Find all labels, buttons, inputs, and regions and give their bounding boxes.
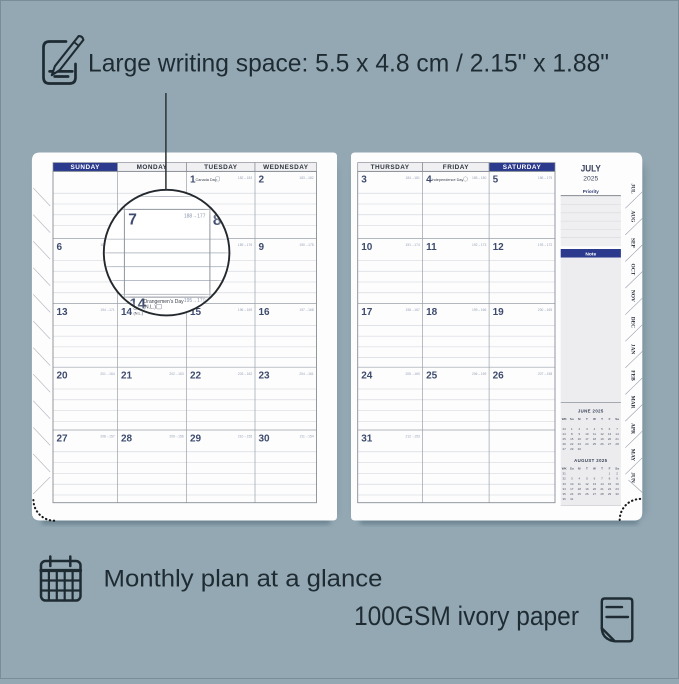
svg-text:Su: Su xyxy=(570,466,574,470)
svg-text:206→159: 206→159 xyxy=(472,372,486,376)
svg-text:9: 9 xyxy=(259,242,265,253)
svg-text:5: 5 xyxy=(493,175,499,186)
svg-text:W: W xyxy=(593,417,596,421)
svg-text:T: T xyxy=(601,417,603,421)
svg-text:11: 11 xyxy=(426,242,437,253)
svg-text:13: 13 xyxy=(608,432,612,436)
svg-text:212→153: 212→153 xyxy=(405,435,419,439)
svg-text:23: 23 xyxy=(578,442,582,446)
svg-text:21: 21 xyxy=(121,371,133,382)
svg-text:27: 27 xyxy=(563,447,567,451)
svg-text:DEC: DEC xyxy=(630,317,636,328)
svg-text:JUN: JUN xyxy=(630,472,636,483)
svg-text:Sa: Sa xyxy=(615,466,619,470)
svg-text:28: 28 xyxy=(600,492,604,496)
svg-text:29: 29 xyxy=(608,492,612,496)
svg-text:MONDAY: MONDAY xyxy=(137,164,168,171)
svg-text:JULY: JULY xyxy=(581,163,601,174)
svg-text:24: 24 xyxy=(361,371,373,382)
svg-text:25: 25 xyxy=(578,492,582,496)
svg-text:23: 23 xyxy=(563,427,567,431)
svg-text:10: 10 xyxy=(361,242,373,253)
svg-text:14: 14 xyxy=(600,482,604,486)
svg-text:13: 13 xyxy=(593,482,597,486)
svg-text:W: W xyxy=(593,466,596,470)
svg-text:APR: APR xyxy=(630,423,636,434)
svg-text:20: 20 xyxy=(57,371,69,382)
svg-text:FEB: FEB xyxy=(630,370,636,381)
svg-text:25: 25 xyxy=(593,442,597,446)
svg-text:20: 20 xyxy=(608,437,612,441)
svg-text:WK: WK xyxy=(562,466,568,470)
svg-text:2025: 2025 xyxy=(583,175,598,182)
svg-text:WEDNESDAY: WEDNESDAY xyxy=(263,164,309,171)
svg-text:19: 19 xyxy=(585,487,589,491)
svg-text:29: 29 xyxy=(570,447,574,451)
svg-text:25: 25 xyxy=(426,371,438,382)
svg-text:31: 31 xyxy=(563,472,567,476)
svg-text:189→176: 189→176 xyxy=(238,243,252,247)
svg-text:12: 12 xyxy=(585,482,589,486)
svg-text:209→156: 209→156 xyxy=(169,435,183,439)
svg-text:35: 35 xyxy=(563,492,567,496)
svg-text:11: 11 xyxy=(593,432,596,436)
svg-text:22: 22 xyxy=(608,487,612,491)
svg-text:12: 12 xyxy=(600,432,604,436)
svg-text:20: 20 xyxy=(593,487,597,491)
svg-text:34: 34 xyxy=(563,487,567,491)
svg-text:SATURDAY: SATURDAY xyxy=(503,164,542,171)
svg-text:26: 26 xyxy=(585,492,589,496)
svg-text:Canada Day: Canada Day xyxy=(196,178,217,182)
svg-text:SUNDAY: SUNDAY xyxy=(70,164,100,171)
svg-text:30: 30 xyxy=(259,433,271,444)
svg-text:205→160: 205→160 xyxy=(405,372,419,376)
svg-text:23: 23 xyxy=(259,371,271,382)
svg-text:194→171: 194→171 xyxy=(100,308,114,312)
svg-text:190→175: 190→175 xyxy=(299,243,313,247)
svg-text:23: 23 xyxy=(615,487,619,491)
svg-text:27: 27 xyxy=(608,442,612,446)
svg-text:18: 18 xyxy=(578,487,582,491)
svg-text:201→164: 201→164 xyxy=(100,372,114,376)
svg-text:192→173: 192→173 xyxy=(472,243,486,247)
svg-text:191→174: 191→174 xyxy=(405,243,419,247)
svg-text:17: 17 xyxy=(585,437,589,441)
svg-text:T: T xyxy=(586,466,588,470)
svg-text:204→161: 204→161 xyxy=(299,372,313,376)
svg-text:185→180: 185→180 xyxy=(472,176,486,180)
svg-text:184→181: 184→181 xyxy=(405,176,419,180)
svg-text:18: 18 xyxy=(426,307,438,318)
svg-text:202→163: 202→163 xyxy=(169,372,183,376)
svg-text:17: 17 xyxy=(570,487,574,491)
svg-text:T: T xyxy=(586,417,588,421)
svg-text:6: 6 xyxy=(57,242,63,253)
svg-text:THURSDAY: THURSDAY xyxy=(371,164,410,171)
svg-text:25: 25 xyxy=(563,437,567,441)
svg-text:197→168: 197→168 xyxy=(299,308,313,312)
svg-text:30: 30 xyxy=(578,447,582,451)
svg-text:15: 15 xyxy=(570,437,574,441)
svg-text:14: 14 xyxy=(121,307,133,318)
svg-text:MAR: MAR xyxy=(630,396,636,409)
svg-text:16: 16 xyxy=(259,307,271,318)
svg-text:19: 19 xyxy=(600,437,604,441)
svg-text:JUL: JUL xyxy=(630,184,636,195)
svg-text:10: 10 xyxy=(585,432,589,436)
svg-text:24: 24 xyxy=(563,432,567,436)
svg-text:26: 26 xyxy=(563,442,567,446)
svg-text:27: 27 xyxy=(57,433,69,444)
svg-text:31: 31 xyxy=(570,497,574,501)
svg-text:AUG: AUG xyxy=(630,210,636,223)
svg-text:2: 2 xyxy=(259,175,265,186)
svg-text:193→172: 193→172 xyxy=(538,243,552,247)
svg-text:FRIDAY: FRIDAY xyxy=(443,164,469,171)
svg-text:26: 26 xyxy=(493,371,505,382)
svg-text:MAY: MAY xyxy=(630,449,636,461)
svg-text:F: F xyxy=(609,417,611,421)
svg-text:210→155: 210→155 xyxy=(238,435,252,439)
svg-text:31: 31 xyxy=(361,433,373,444)
svg-text:21: 21 xyxy=(615,437,619,441)
svg-text:Priority: Priority xyxy=(583,189,600,194)
svg-text:13: 13 xyxy=(57,307,69,318)
svg-text:200→165: 200→165 xyxy=(538,308,552,312)
svg-text:26: 26 xyxy=(600,442,604,446)
svg-text:JUNE 2025: JUNE 2025 xyxy=(578,409,604,414)
svg-text:27: 27 xyxy=(593,492,597,496)
svg-text:196→169: 196→169 xyxy=(238,308,252,312)
svg-text:T: T xyxy=(601,466,603,470)
svg-text:NOV: NOV xyxy=(630,290,636,302)
svg-text:17: 17 xyxy=(361,307,373,318)
svg-text:21: 21 xyxy=(600,487,604,491)
svg-text:Sa: Sa xyxy=(615,417,619,421)
svg-text:Monthly plan at a glance: Monthly plan at a glance xyxy=(104,566,383,593)
svg-text:15: 15 xyxy=(608,482,612,486)
svg-text:10: 10 xyxy=(570,482,574,486)
svg-text:OCT: OCT xyxy=(630,264,636,276)
svg-text:198→167: 198→167 xyxy=(405,308,419,312)
svg-text:36: 36 xyxy=(563,497,567,501)
svg-text:30: 30 xyxy=(615,492,619,496)
svg-text:11: 11 xyxy=(578,482,581,486)
svg-text:22: 22 xyxy=(570,442,574,446)
svg-text:182→183: 182→183 xyxy=(238,176,252,180)
svg-text:14: 14 xyxy=(615,432,619,436)
svg-text:Su: Su xyxy=(570,417,574,421)
svg-text:203→162: 203→162 xyxy=(238,372,252,376)
svg-text:24: 24 xyxy=(585,442,589,446)
svg-text:TUESDAY: TUESDAY xyxy=(204,164,238,171)
svg-text:19: 19 xyxy=(493,307,505,318)
svg-text:12: 12 xyxy=(493,242,505,253)
svg-text:207→158: 207→158 xyxy=(538,372,552,376)
svg-text:32: 32 xyxy=(563,477,567,481)
svg-text:28: 28 xyxy=(615,442,619,446)
svg-text:24: 24 xyxy=(570,492,574,496)
svg-text:208→157: 208→157 xyxy=(100,435,114,439)
svg-text:Note: Note xyxy=(585,251,596,257)
svg-text:186→179: 186→179 xyxy=(538,176,552,180)
svg-text:29: 29 xyxy=(190,433,202,444)
svg-text:Independence Day: Independence Day xyxy=(432,178,464,182)
svg-text:199→166: 199→166 xyxy=(472,308,486,312)
svg-text:18: 18 xyxy=(593,437,597,441)
svg-text:(N.L.): (N.L.) xyxy=(134,311,144,315)
svg-text:211→154: 211→154 xyxy=(300,435,314,439)
svg-text:100GSM ivory paper: 100GSM ivory paper xyxy=(354,601,579,631)
svg-text:33: 33 xyxy=(563,482,567,486)
svg-text:28: 28 xyxy=(121,433,133,444)
svg-text:AUGUST 2025: AUGUST 2025 xyxy=(574,458,608,463)
svg-text:22: 22 xyxy=(190,371,202,382)
svg-text:16: 16 xyxy=(578,437,582,441)
svg-text:SEP: SEP xyxy=(630,238,636,249)
svg-text:Large writing space: 5.5 x 4.8: Large writing space: 5.5 x 4.8 cm / 2.15… xyxy=(88,50,609,78)
svg-text:16: 16 xyxy=(615,482,619,486)
svg-text:183→182: 183→182 xyxy=(299,176,313,180)
svg-text:F: F xyxy=(609,466,611,470)
svg-text:JAN: JAN xyxy=(630,344,636,355)
svg-text:WK: WK xyxy=(562,417,568,421)
svg-text:3: 3 xyxy=(361,175,367,186)
